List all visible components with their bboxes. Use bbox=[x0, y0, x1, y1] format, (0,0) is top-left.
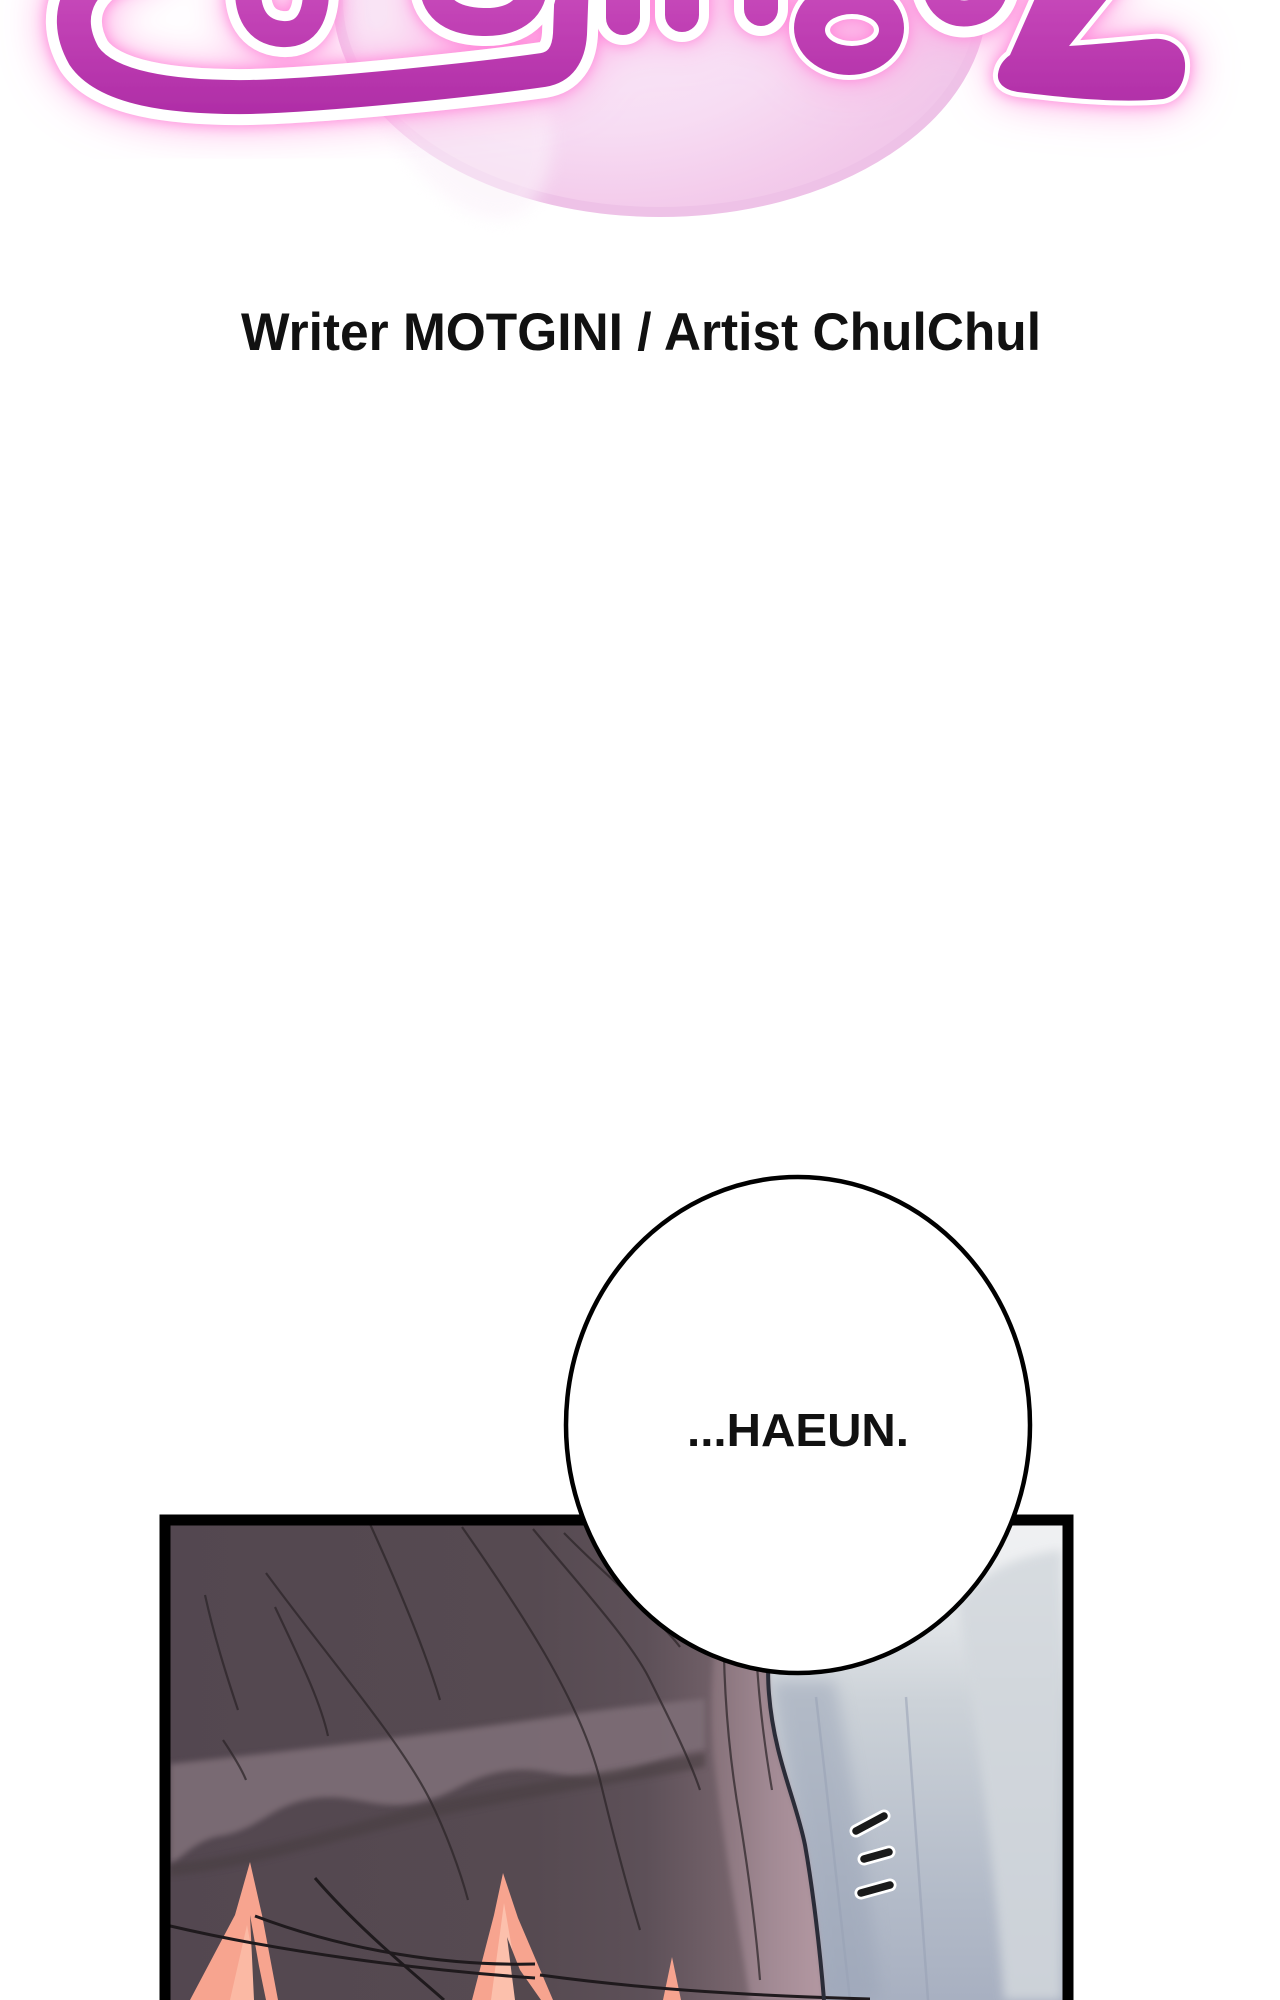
svg-text:...HAEUN.: ...HAEUN. bbox=[687, 1404, 909, 1456]
svg-text:Writer MOTGINI / Artist ChulCh: Writer MOTGINI / Artist ChulChul bbox=[241, 303, 1041, 362]
